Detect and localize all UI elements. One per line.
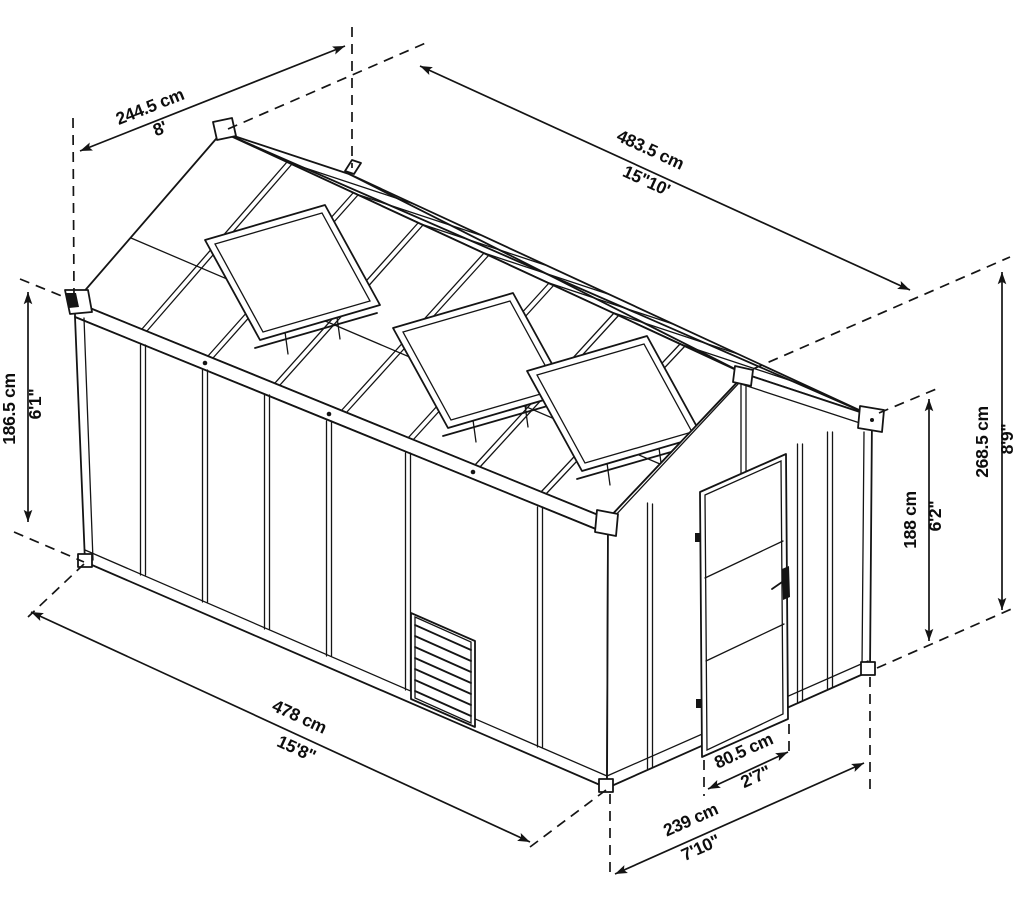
side-length-imperial-label: 15'8" xyxy=(274,731,319,766)
ridge-end-tab xyxy=(345,160,361,174)
door-height-imperial-label: 6'2" xyxy=(925,501,945,532)
door xyxy=(695,454,790,757)
side-length-metric-label: 478 cm xyxy=(269,695,330,737)
greenhouse-dimension-diagram: 244.5 cm 8' 483.5 cm 15"10' 186.5 cm 6'1… xyxy=(0,0,1024,913)
total-height-imperial-label: 8'9" xyxy=(997,424,1017,455)
greenhouse-drawing xyxy=(65,118,884,792)
door-hinge-bottom xyxy=(696,699,701,708)
door-hinge-top xyxy=(695,533,700,542)
door-width-imperial-label: 2'7" xyxy=(737,761,773,792)
roof-width-imperial-label: 8' xyxy=(150,117,170,141)
total-height-metric-label: 268.5 cm xyxy=(972,406,992,478)
dimension-door-height: 188 cm 6'2" xyxy=(879,387,945,641)
dimension-side-wall-height: 186.5 cm 6'1" xyxy=(0,279,84,562)
door-height-metric-label: 188 cm xyxy=(900,491,920,549)
side-wall-height-imperial-label: 6'1" xyxy=(25,389,45,420)
dimension-total-height: 268.5 cm 8'9" xyxy=(877,272,1017,668)
side-wall-height-metric-label: 186.5 cm xyxy=(0,373,19,445)
diagram-canvas: 244.5 cm 8' 483.5 cm 15"10' 186.5 cm 6'1… xyxy=(0,0,1024,913)
